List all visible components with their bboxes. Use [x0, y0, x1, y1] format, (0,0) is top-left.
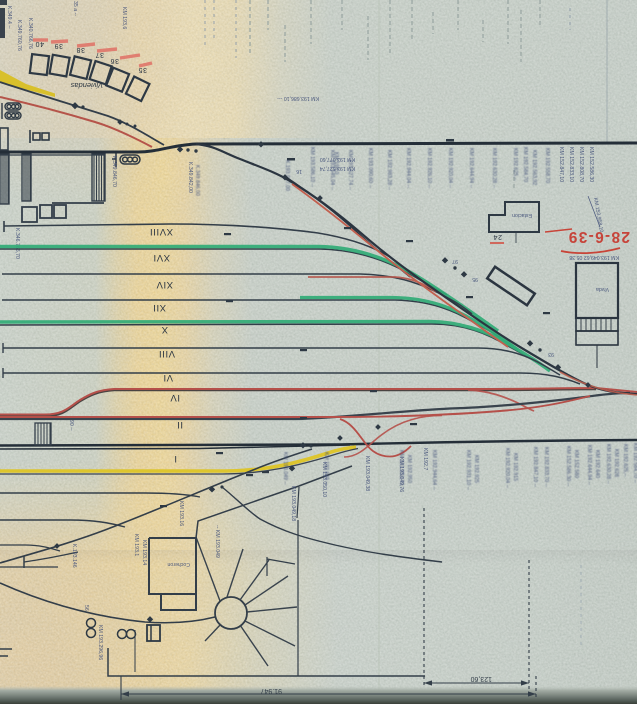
svg-text:56: 56 — [83, 605, 89, 611]
svg-text:KM 152.580: KM 152.580 — [573, 450, 579, 478]
svg-text:K.340.766,76: K.340.766,76 — [27, 18, 33, 49]
svg-text:KM 152.847,10: KM 152.847,10 — [558, 147, 564, 182]
svg-text:K.193.146: K.193.146 — [71, 544, 77, 568]
svg-text:KM 192.915: KM 192.915 — [512, 453, 518, 481]
svg-text:KM 193.049,38: KM 193.049,38 — [364, 456, 370, 491]
svg-text:KM 193.049,62 05.38: KM 193.049,62 05.38 — [569, 254, 619, 260]
svg-text:KM 192.931,10 --: KM 192.931,10 -- — [465, 450, 471, 490]
svg-text:KM 152.586,30: KM 152.586,30 — [588, 147, 594, 182]
svg-text:KM 193.686,10 ---: KM 193.686,10 --- — [277, 95, 319, 101]
svg-text:KM 192.644,94 --: KM 192.644,94 -- — [586, 445, 592, 485]
svg-text:KM 192.920,04 --: KM 192.920,04 -- — [504, 448, 510, 488]
svg-text:IV: IV — [170, 392, 180, 403]
svg-text:VIII: VIII — [158, 348, 175, 359]
svg-text:KM 192.920,04 --: KM 192.920,04 -- — [447, 148, 453, 188]
svg-text:KM 192.983,28 --: KM 192.983,28 -- — [386, 150, 392, 190]
svg-text:X: X — [161, 324, 168, 335]
svg-text:KM 192.944,04 --: KM 192.944,04 -- — [405, 148, 411, 188]
svg-text:XIV: XIV — [156, 279, 173, 290]
svg-text:KM 192.558,70: KM 192.558,70 — [544, 148, 550, 183]
svg-text:K.349.842,00: K.349.842,00 — [187, 162, 193, 193]
svg-text:KM 192.849 --: KM 192.849 -- — [323, 452, 329, 485]
svg-text:KM 192.625,--: KM 192.625,-- — [622, 444, 628, 477]
svg-text:K.349.846,00: K.349.846,00 — [194, 165, 200, 196]
svg-text:KM 193.049,18: KM 193.049,18 — [290, 486, 296, 521]
svg-text:KM 192.847,10 --: KM 192.847,10 -- — [532, 447, 538, 487]
svg-text:KM 192.7: KM 192.7 — [422, 448, 428, 470]
svg-text:K.349.846,70: K.349.846,70 — [111, 156, 117, 187]
svg-text:XVIII: XVIII — [149, 226, 173, 237]
svg-text:XII: XII — [153, 302, 166, 313]
svg-text:KM 192.584,70 --: KM 192.584,70 -- — [632, 443, 637, 483]
svg-text:93: 93 — [548, 351, 554, 357]
svg-text:KM 192.950: KM 192.950 — [406, 455, 412, 483]
svg-text:II: II — [177, 419, 183, 430]
svg-text:K.346.766,70: K.346.766,70 — [14, 228, 20, 259]
svg-text:Cocheron: Cocheron — [167, 561, 190, 567]
svg-text:KM 192.630,28 --: KM 192.630,28 -- — [605, 444, 611, 484]
svg-text:36: 36 — [110, 57, 119, 64]
svg-text:-- KM 193.049: -- KM 193.049 — [214, 525, 220, 558]
svg-text:KM 192.944,64 --: KM 192.944,64 -- — [431, 450, 437, 490]
svg-text:KM 193.296,96: KM 193.296,96 — [97, 625, 103, 660]
svg-text:90 --: 90 -- — [68, 420, 74, 431]
svg-text:KM 192.644,94 --: KM 192.644,94 -- — [468, 148, 474, 188]
svg-text:KM 193.077,60: KM 193.077,60 — [320, 156, 355, 162]
svg-text:16: 16 — [296, 168, 302, 174]
svg-text:KM 193,6: KM 193,6 — [121, 7, 127, 29]
svg-text:KM 192.584,70: KM 192.584,70 — [522, 147, 528, 182]
svg-text:KM 192.628: KM 192.628 — [613, 449, 619, 477]
svg-text:KM 193.090,60 --: KM 193.090,60 -- — [367, 148, 373, 188]
svg-text:28-6-39: 28-6-39 — [567, 228, 630, 245]
svg-text:KM 192.625,--: KM 192.625,-- — [512, 148, 518, 181]
svg-text:97: 97 — [452, 258, 458, 264]
svg-text:KM 193.16: KM 193.16 — [178, 501, 184, 526]
svg-text:KM 193.527,74: KM 193.527,74 — [320, 165, 355, 171]
svg-text:35 a --: 35 a -- — [72, 1, 78, 16]
svg-text:KM 192.925: KM 192.925 — [473, 455, 479, 483]
svg-text:123,60: 123,60 — [470, 675, 492, 682]
svg-text:XVI: XVI — [153, 252, 170, 263]
svg-text:KM 152.586,30 --: KM 152.586,30 -- — [565, 446, 571, 486]
svg-text:24: 24 — [493, 233, 502, 240]
svg-text:91.947: 91.947 — [260, 687, 282, 694]
svg-text:KM 193.049 --: KM 193.049 -- — [282, 452, 288, 485]
svg-text:KM 193.586,10 --: KM 193.586,10 -- — [309, 147, 315, 187]
svg-text:KM 192.630,28 --: KM 192.630,28 -- — [491, 148, 497, 188]
svg-text:K.349.4 --: K.349.4 -- — [6, 6, 12, 29]
svg-text:KM 152.808,70: KM 152.808,70 — [578, 147, 584, 182]
svg-text:KM 193.14: KM 193.14 — [141, 540, 147, 565]
svg-text:Vivda: Vivda — [596, 286, 609, 292]
svg-text:95: 95 — [472, 276, 478, 282]
svg-text:KM 152.833,10: KM 152.833,10 — [568, 147, 574, 182]
svg-text:KM 192.563,92: KM 192.563,92 — [531, 150, 537, 185]
svg-text:KM 192.833,70 --: KM 192.833,70 -- — [543, 447, 549, 487]
svg-text:KM 192.640: KM 192.640 — [594, 450, 600, 478]
svg-text:K.349.760,76: K.349.760,76 — [16, 20, 22, 51]
svg-text:I: I — [174, 453, 177, 464]
svg-text:VI: VI — [163, 372, 173, 383]
svg-text:Viviendas: Viviendas — [70, 81, 103, 90]
svg-text:KM 192.958,70 --: KM 192.958,70 -- — [398, 450, 404, 490]
svg-text:KM 192.926,10 --: KM 192.926,10 -- — [426, 148, 432, 188]
svg-text:Estacion: Estacion — [512, 212, 532, 218]
svg-text:KM 193.1: KM 193.1 — [133, 534, 139, 556]
